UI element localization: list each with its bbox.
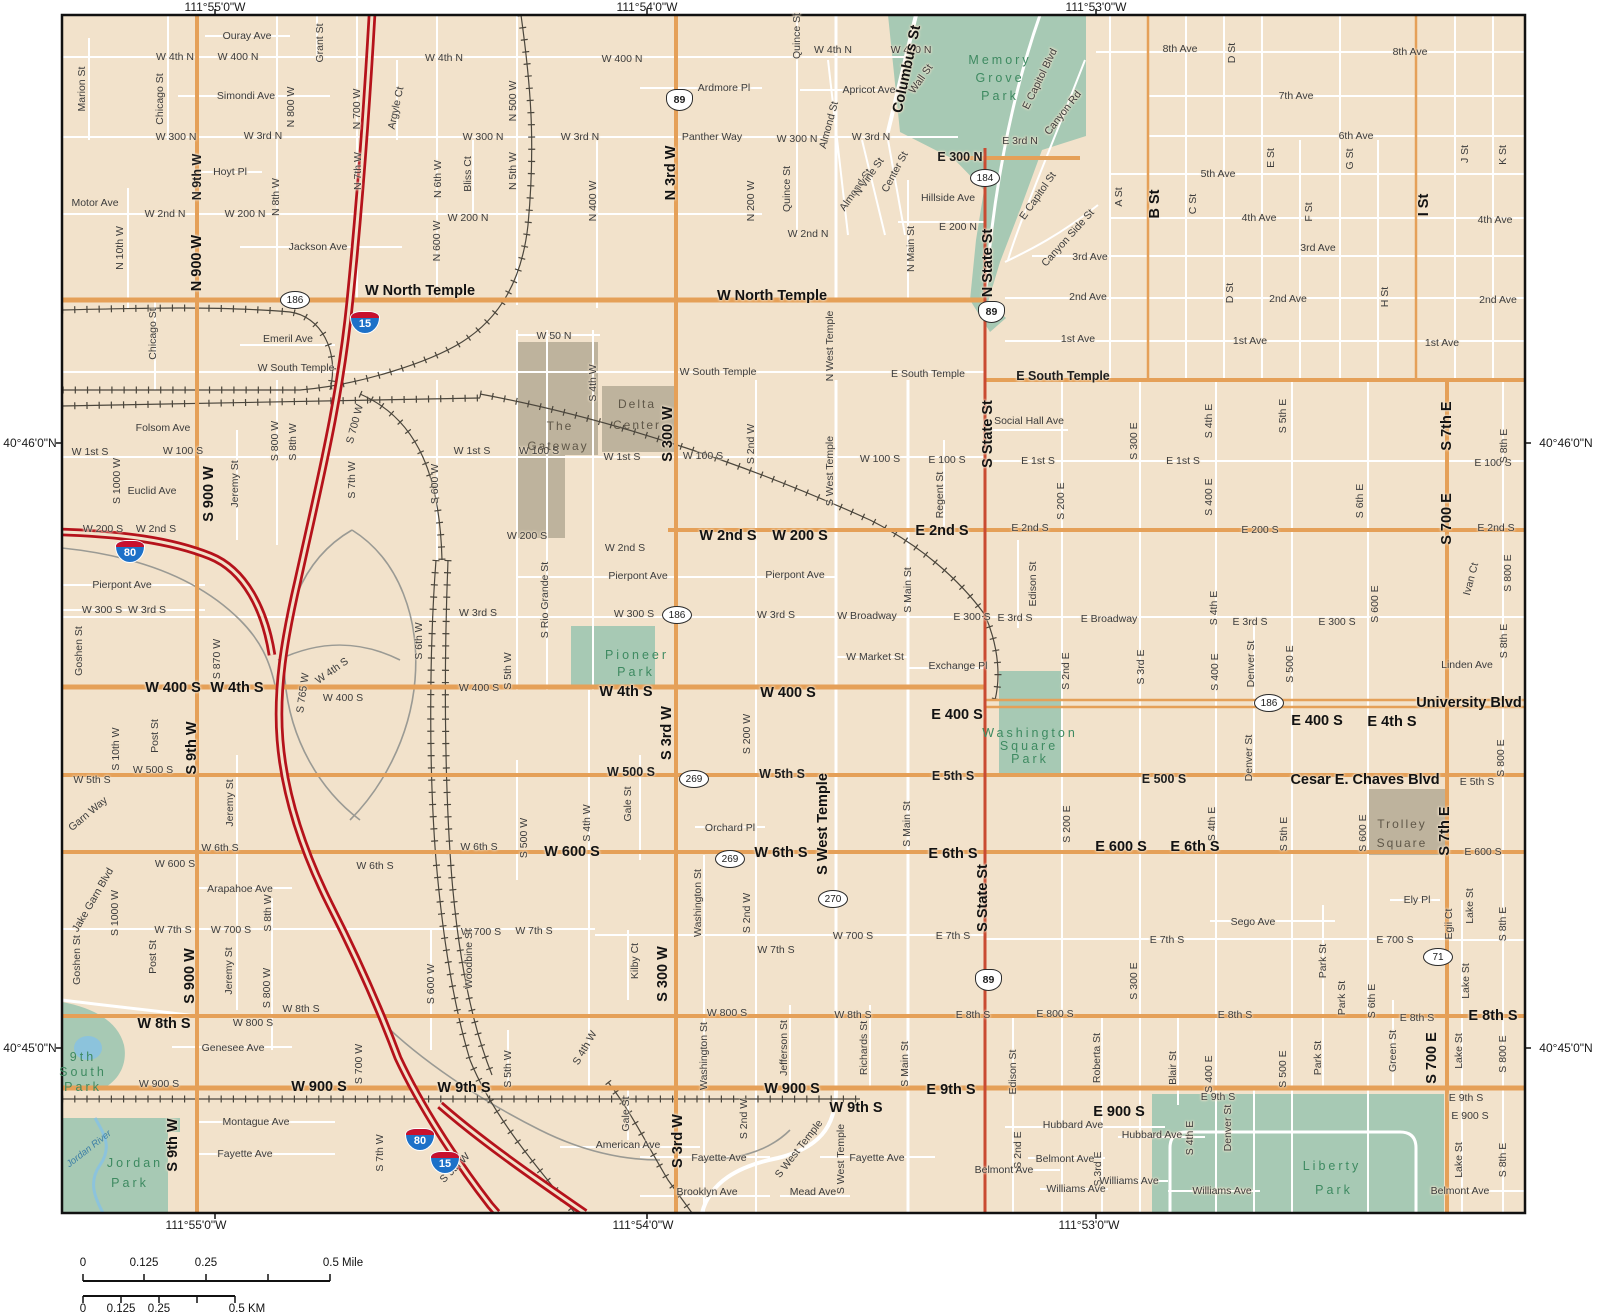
land-background — [62, 15, 1525, 1213]
trolley-square — [1368, 789, 1447, 855]
pond — [74, 1036, 102, 1060]
pioneer-park — [571, 626, 655, 688]
delta-center — [602, 386, 676, 452]
map-canvas — [0, 0, 1623, 1315]
map-page: 111°55'0"W111°54'0"W111°53'0"W111°55'0"W… — [0, 0, 1623, 1315]
washington-square-park — [999, 671, 1063, 775]
map-layers — [62, 15, 1525, 1213]
jordan-park — [62, 1118, 180, 1213]
liberty-park — [1152, 1094, 1444, 1213]
